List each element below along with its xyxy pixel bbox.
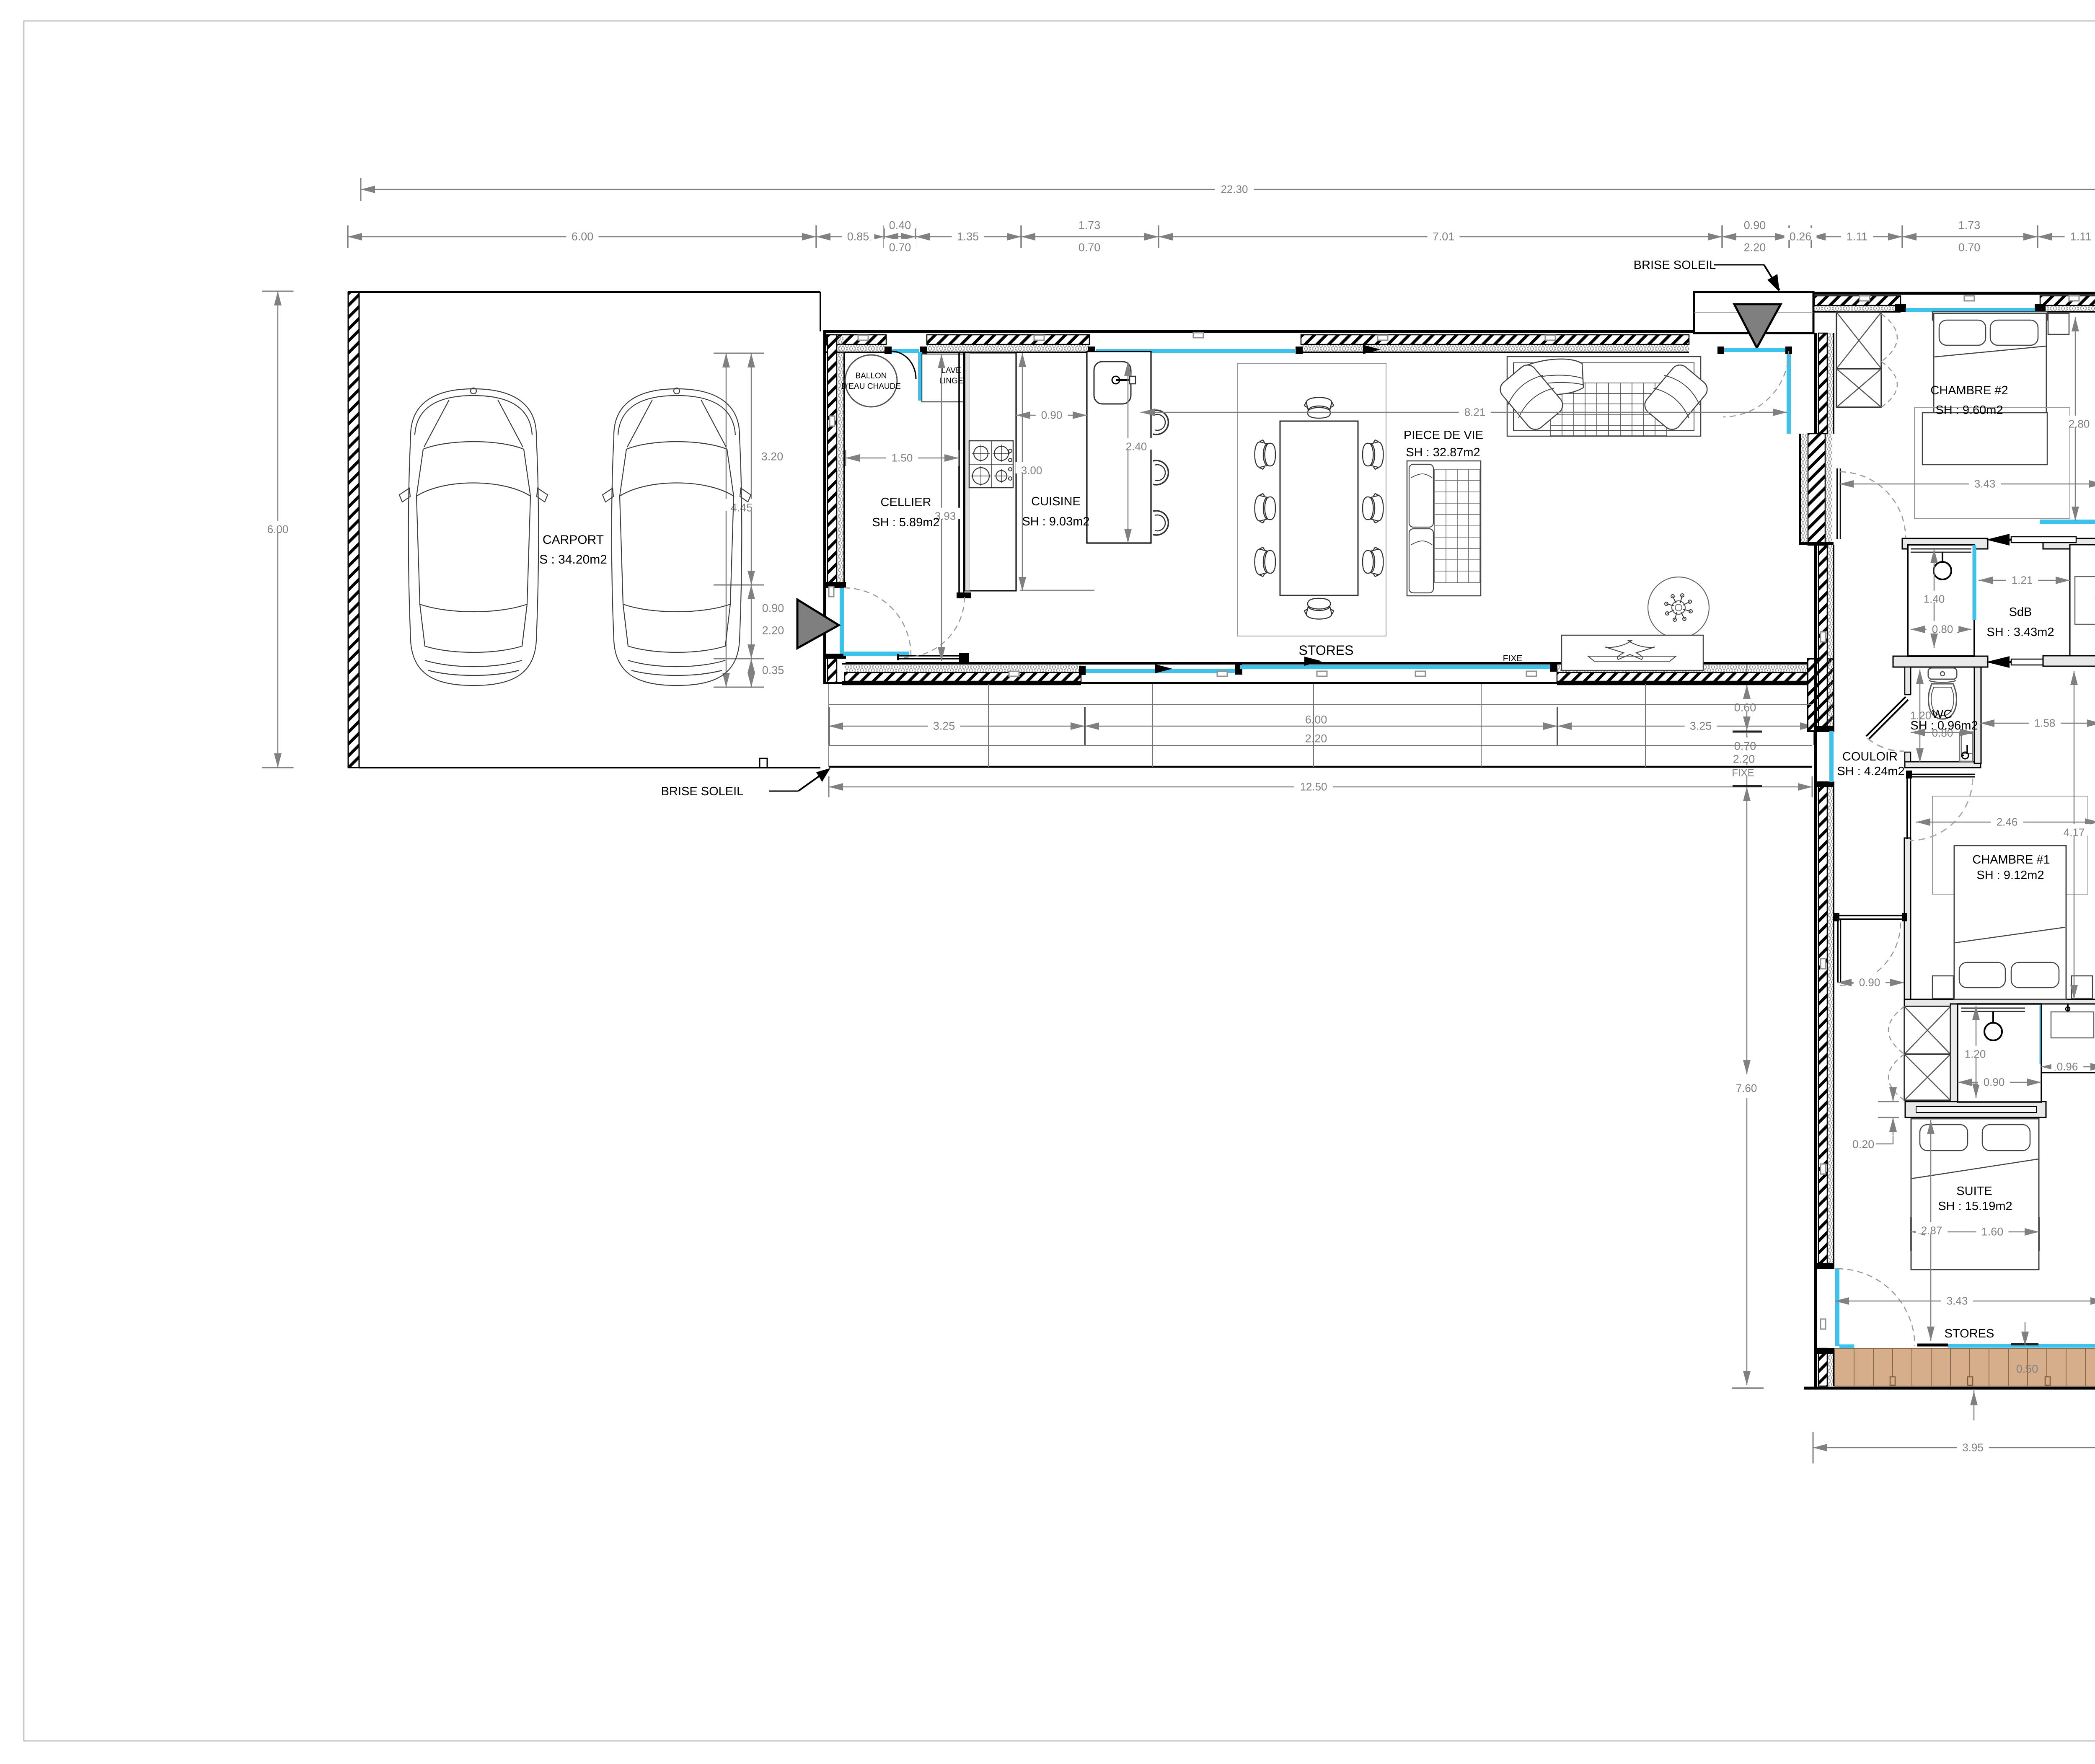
svg-text:3.43: 3.43 bbox=[1947, 1294, 1968, 1307]
svg-text:STORES: STORES bbox=[1299, 643, 1354, 658]
svg-text:3.25: 3.25 bbox=[933, 720, 955, 732]
svg-text:4.17: 4.17 bbox=[2064, 826, 2085, 838]
svg-text:2.80: 2.80 bbox=[2069, 417, 2090, 430]
svg-text:0.70: 0.70 bbox=[1079, 241, 1101, 254]
svg-text:CELLIER: CELLIER bbox=[881, 496, 931, 509]
svg-text:3.43: 3.43 bbox=[1974, 477, 1996, 490]
svg-text:3.20: 3.20 bbox=[761, 450, 784, 463]
svg-text:CHAMBRE #1: CHAMBRE #1 bbox=[1972, 853, 2050, 866]
svg-text:SH : 32.87m2: SH : 32.87m2 bbox=[1406, 446, 1480, 459]
svg-text:2.20: 2.20 bbox=[1733, 753, 1755, 766]
svg-text:0.35: 0.35 bbox=[762, 664, 784, 677]
svg-text:BRISE SOLEIL: BRISE SOLEIL bbox=[661, 785, 744, 798]
svg-text:STORES: STORES bbox=[1945, 1327, 1994, 1340]
svg-text:2.20: 2.20 bbox=[1305, 732, 1327, 745]
svg-text:SH : 3.43m2: SH : 3.43m2 bbox=[1986, 626, 2054, 639]
svg-text:6.00: 6.00 bbox=[1305, 714, 1327, 726]
svg-text:1.11: 1.11 bbox=[2070, 230, 2092, 243]
svg-text:12.50: 12.50 bbox=[1300, 780, 1327, 793]
svg-text:0.90: 0.90 bbox=[762, 602, 784, 615]
svg-text:SH : 15.19m2: SH : 15.19m2 bbox=[1938, 1200, 2012, 1213]
svg-text:0.80: 0.80 bbox=[1932, 623, 1953, 635]
svg-text:7.60: 7.60 bbox=[1736, 1082, 1757, 1094]
svg-text:SH : 9.03m2: SH : 9.03m2 bbox=[1022, 515, 1089, 528]
svg-text:1.11: 1.11 bbox=[1847, 230, 1868, 243]
svg-text:3.00: 3.00 bbox=[1021, 464, 1042, 476]
svg-text:0.85: 0.85 bbox=[847, 230, 869, 243]
svg-text:0.70: 0.70 bbox=[889, 241, 911, 254]
svg-text:1.20: 1.20 bbox=[1965, 1048, 1986, 1060]
svg-text:8.21: 8.21 bbox=[1464, 406, 1486, 418]
svg-text:1.73: 1.73 bbox=[1958, 219, 1981, 232]
svg-text:SH : 9.12m2: SH : 9.12m2 bbox=[1976, 869, 2044, 882]
svg-text:0.96: 0.96 bbox=[2057, 1060, 2078, 1073]
svg-text:0.90: 0.90 bbox=[1744, 219, 1766, 232]
svg-text:6.00: 6.00 bbox=[267, 523, 289, 535]
svg-text:BALLON: BALLON bbox=[856, 372, 887, 380]
svg-text:7.01: 7.01 bbox=[1433, 230, 1455, 243]
svg-text:2.40: 2.40 bbox=[1126, 440, 1147, 453]
svg-text:SdB: SdB bbox=[2009, 605, 2032, 619]
svg-text:SUITE: SUITE bbox=[1956, 1185, 1992, 1198]
svg-text:3.25: 3.25 bbox=[1690, 720, 1712, 732]
svg-text:0.50: 0.50 bbox=[2016, 1363, 2038, 1375]
svg-text:CARPORT: CARPORT bbox=[543, 533, 604, 547]
svg-text:0.40: 0.40 bbox=[889, 219, 911, 232]
svg-text:22.30: 22.30 bbox=[1221, 183, 1248, 195]
svg-text:2.20: 2.20 bbox=[762, 624, 784, 637]
svg-text:FIXE: FIXE bbox=[1732, 768, 1754, 779]
svg-text:FIXE: FIXE bbox=[1503, 654, 1523, 663]
svg-text:1.21: 1.21 bbox=[2012, 574, 2033, 586]
svg-text:CUISINE: CUISINE bbox=[1031, 495, 1081, 508]
svg-text:PIECE DE VIE: PIECE DE VIE bbox=[1404, 429, 1483, 442]
svg-text:3.95: 3.95 bbox=[1962, 1441, 1984, 1454]
svg-text:S : 34.20m2: S : 34.20m2 bbox=[539, 553, 607, 566]
svg-text:D'EAU CHAUDE: D'EAU CHAUDE bbox=[841, 382, 901, 391]
svg-text:2.87: 2.87 bbox=[1921, 1224, 1942, 1236]
svg-text:COULOIR: COULOIR bbox=[1842, 750, 1898, 763]
svg-text:0.90: 0.90 bbox=[1041, 409, 1063, 421]
svg-text:1.58: 1.58 bbox=[2034, 716, 2056, 729]
svg-text:SH : 0.96m2: SH : 0.96m2 bbox=[1910, 719, 1978, 732]
svg-text:2.46: 2.46 bbox=[1997, 815, 2018, 828]
svg-text:SH : 4.24m2: SH : 4.24m2 bbox=[1837, 765, 1904, 778]
svg-text:0.60: 0.60 bbox=[1734, 701, 1756, 714]
svg-text:1.35: 1.35 bbox=[957, 230, 979, 243]
svg-text:0.90: 0.90 bbox=[1984, 1076, 2005, 1088]
svg-text:1.50: 1.50 bbox=[892, 451, 913, 464]
svg-text:SH : 5.89m2: SH : 5.89m2 bbox=[872, 516, 939, 529]
svg-text:6.00: 6.00 bbox=[572, 230, 594, 243]
svg-text:1.40: 1.40 bbox=[1924, 592, 1945, 605]
svg-text:0.26: 0.26 bbox=[1790, 230, 1812, 243]
svg-text:SH : 9.60m2: SH : 9.60m2 bbox=[1935, 403, 2003, 417]
svg-text:CHAMBRE #2: CHAMBRE #2 bbox=[1930, 384, 2008, 397]
svg-text:BRISE SOLEIL: BRISE SOLEIL bbox=[1634, 259, 1716, 272]
svg-text:2.20: 2.20 bbox=[1744, 241, 1766, 254]
svg-text:1.73: 1.73 bbox=[1079, 219, 1101, 232]
svg-text:0.70: 0.70 bbox=[1958, 241, 1981, 254]
svg-text:1.60: 1.60 bbox=[1981, 1226, 2004, 1238]
svg-text:0.20: 0.20 bbox=[1852, 1138, 1875, 1151]
svg-text:0.90: 0.90 bbox=[1859, 976, 1880, 988]
